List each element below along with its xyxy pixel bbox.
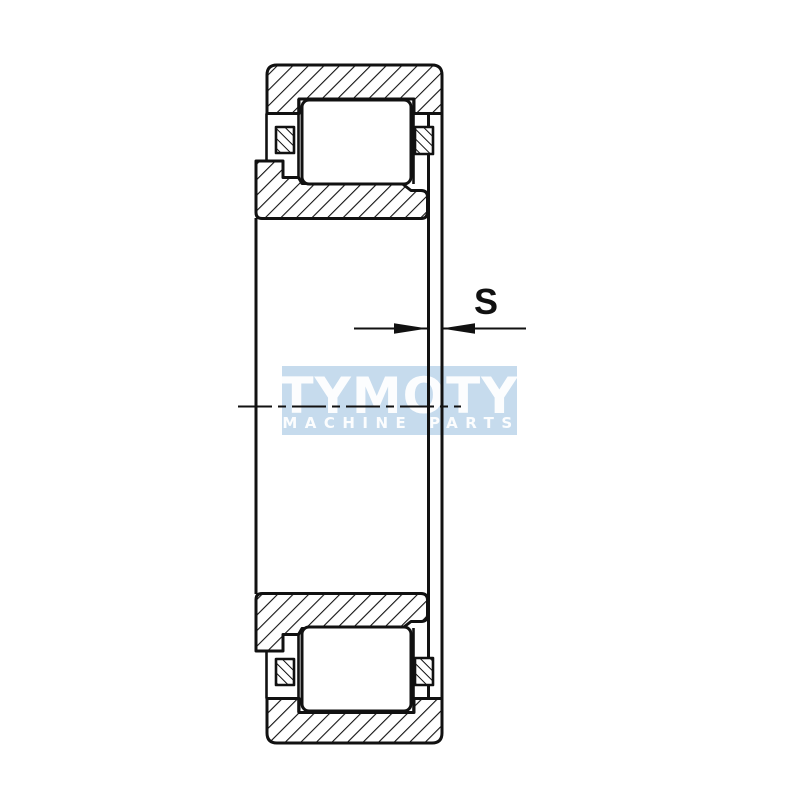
top-cage-segment-right	[415, 127, 433, 154]
bearing-cross-section-drawing: TYMOTY MACHINE PARTS	[0, 0, 800, 800]
bottom-roller	[302, 627, 411, 711]
watermark-tagline-text: MACHINE PARTS	[282, 414, 519, 432]
top-cage-segment-left	[276, 127, 294, 153]
cage-hatch	[276, 127, 294, 153]
cage-hatch	[415, 127, 433, 154]
bearing-diagram-page: TYMOTY MACHINE PARTS	[0, 0, 800, 800]
watermark: TYMOTY MACHINE PARTS	[280, 366, 520, 435]
cage-hatch	[276, 659, 294, 685]
cage-hatch	[415, 658, 433, 685]
bottom-cage-segment-right	[415, 658, 433, 685]
bottom-cage-segment-left	[276, 659, 294, 685]
top-roller	[302, 100, 411, 184]
dimension-s-label: S	[474, 281, 498, 322]
